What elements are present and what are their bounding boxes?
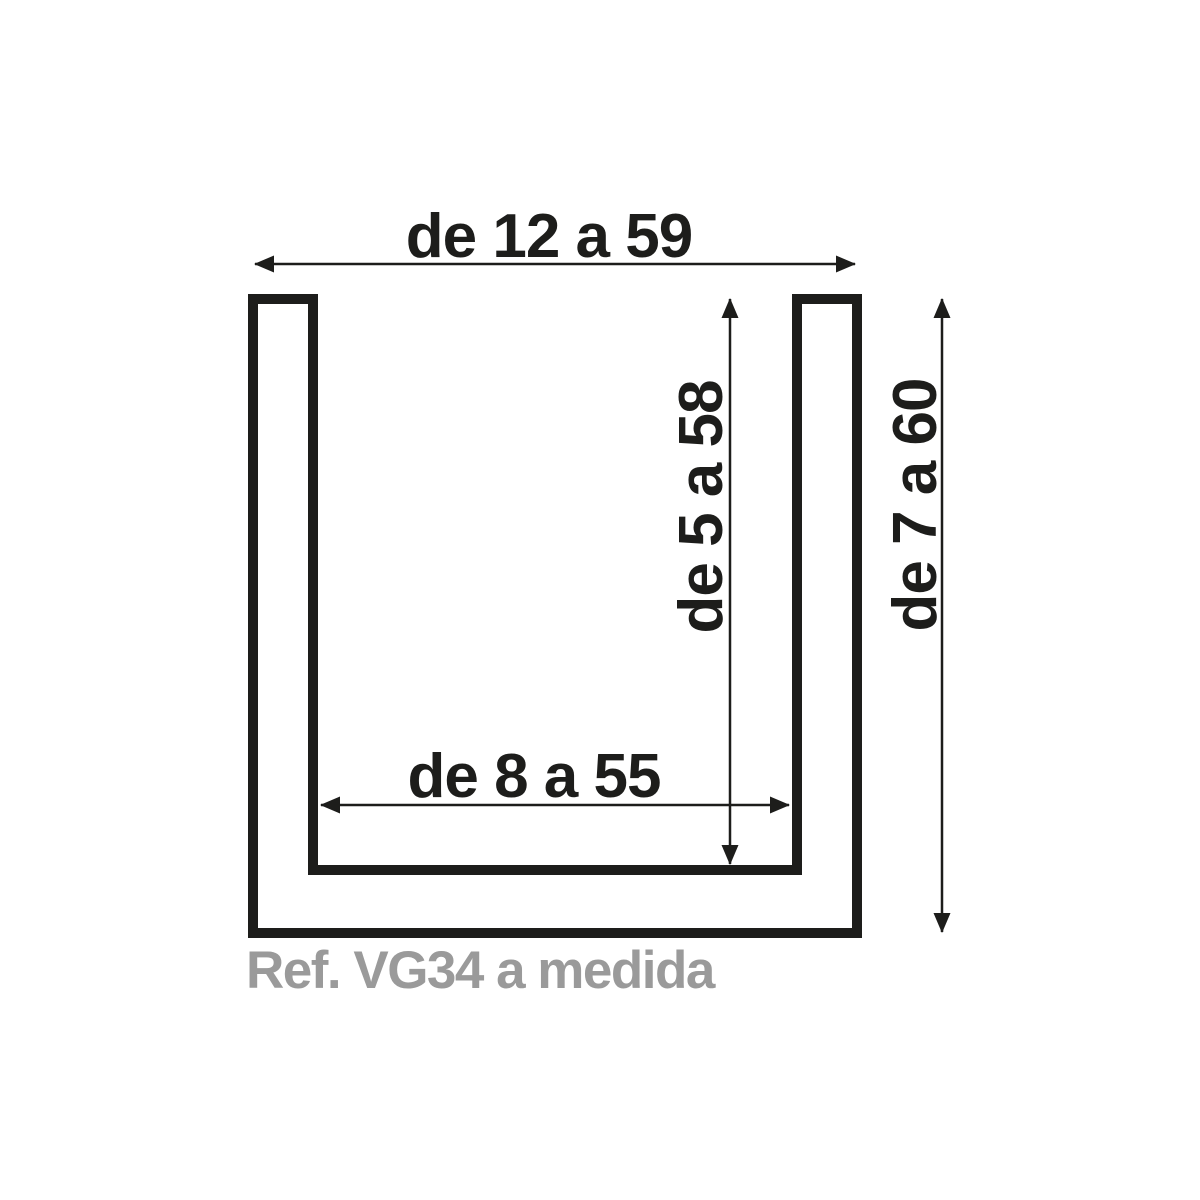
dimension-inner-width: de 8 a 55 xyxy=(321,742,789,811)
dimension-outer-height-label: de 7 a 60 xyxy=(881,379,950,632)
diagram-canvas: de 12 a 59 de 5 a 58 de 7 a 60 de 8 a 55… xyxy=(0,0,1200,1200)
dimension-outer-width-label: de 12 a 59 xyxy=(406,202,692,271)
reference-label: Ref. VG34 a medida xyxy=(246,941,716,1000)
dimension-inner-depth: de 5 a 58 xyxy=(667,299,736,864)
dimension-inner-depth-label: de 5 a 58 xyxy=(667,381,736,634)
dimension-inner-width-label: de 8 a 55 xyxy=(408,742,661,811)
dimension-outer-height: de 7 a 60 xyxy=(881,299,950,932)
dimension-outer-width: de 12 a 59 xyxy=(255,202,855,271)
u-channel-dimension-diagram: de 12 a 59 de 5 a 58 de 7 a 60 de 8 a 55… xyxy=(0,0,1200,1200)
u-channel-profile-outline xyxy=(253,299,857,933)
